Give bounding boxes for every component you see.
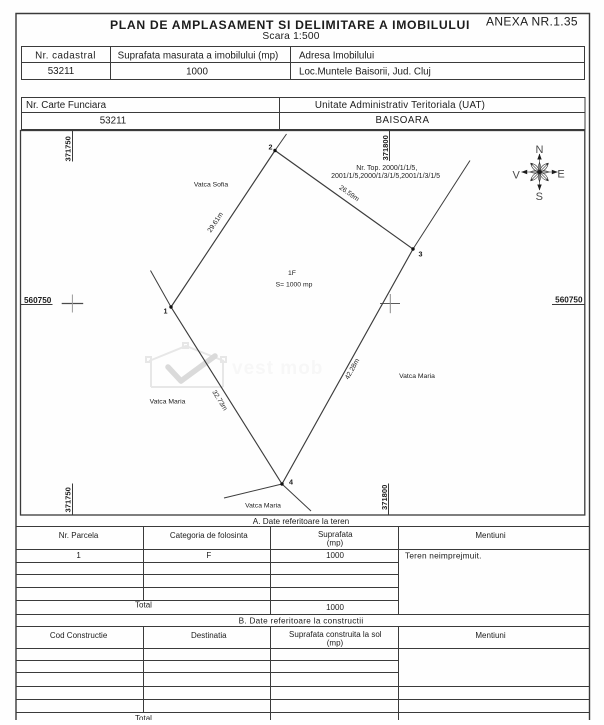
svg-text:ANEXA NR.1.35: ANEXA NR.1.35 [486, 15, 578, 29]
svg-text:Suprafata masurata a imobilulu: Suprafata masurata a imobilului (mp) [118, 51, 279, 62]
svg-text:371750: 371750 [64, 487, 73, 512]
svg-text:1: 1 [76, 551, 81, 560]
svg-text:53211: 53211 [48, 66, 75, 77]
svg-text:1000: 1000 [326, 603, 344, 612]
svg-text:Unitate Administrativ Teritori: Unitate Administrativ Teritoriala (UAT) [315, 100, 485, 111]
svg-text:A. Date referitoare la teren: A. Date referitoare la teren [253, 517, 350, 526]
svg-text:N: N [536, 144, 544, 156]
svg-text:Nr. Parcela: Nr. Parcela [59, 531, 99, 540]
svg-text:1F: 1F [288, 270, 296, 277]
svg-text:E: E [557, 169, 564, 181]
svg-text:3: 3 [419, 250, 423, 259]
svg-text:B. Date referitoare la constru: B. Date referitoare la constructii [239, 617, 364, 626]
svg-text:S= 1000 mp: S= 1000 mp [276, 282, 313, 289]
svg-text:Scara 1:500: Scara 1:500 [262, 31, 319, 42]
svg-text:Total: Total [135, 714, 152, 720]
svg-text:vest mob: vest mob [232, 358, 323, 379]
svg-text:560750: 560750 [555, 296, 583, 305]
svg-text:Total: Total [135, 601, 152, 610]
svg-text:Nr. Carte Funciara: Nr. Carte Funciara [26, 100, 107, 111]
svg-text:Categoria de folosinta: Categoria de folosinta [170, 531, 248, 540]
svg-text:Teren neimprejmuit.: Teren neimprejmuit. [405, 551, 482, 561]
svg-text:F: F [206, 551, 211, 560]
svg-text:Cod Constructie: Cod Constructie [50, 631, 108, 640]
svg-text:Nr. cadastral: Nr. cadastral [35, 51, 96, 62]
svg-text:560750: 560750 [24, 296, 52, 305]
svg-text:Vatca Maria: Vatca Maria [245, 503, 281, 510]
svg-text:371750: 371750 [64, 136, 73, 161]
svg-text:(mp): (mp) [327, 639, 344, 648]
svg-text:S: S [536, 191, 543, 203]
svg-text:Adresa Imobilului: Adresa Imobilului [299, 51, 374, 62]
svg-text:Mentiuni: Mentiuni [475, 531, 505, 540]
svg-text:PLAN DE AMPLASAMENT SI DELIMIT: PLAN DE AMPLASAMENT SI DELIMITARE A IMOB… [110, 18, 470, 32]
svg-text:371800: 371800 [380, 485, 389, 510]
svg-text:V: V [513, 170, 521, 182]
svg-text:Nr. Top. 2000/1/1/5,: Nr. Top. 2000/1/1/5, [356, 165, 417, 172]
svg-text:53211: 53211 [100, 116, 127, 127]
svg-text:BAISOARA: BAISOARA [375, 115, 429, 126]
svg-text:(mp): (mp) [327, 539, 344, 548]
svg-text:1000: 1000 [326, 551, 344, 560]
svg-text:1000: 1000 [186, 67, 208, 78]
svg-text:Vatca Sofia: Vatca Sofia [194, 182, 228, 189]
svg-text:1: 1 [164, 307, 168, 316]
svg-text:2001/1/5,2000/1/3/1/5,2001/1/3: 2001/1/5,2000/1/3/1/5,2001/1/3/1/5 [331, 173, 440, 180]
svg-text:Mentiuni: Mentiuni [475, 631, 505, 640]
svg-text:Vatca Maria: Vatca Maria [150, 399, 186, 406]
svg-text:4: 4 [289, 478, 293, 487]
svg-text:Destinatia: Destinatia [191, 631, 227, 640]
svg-text:2: 2 [269, 143, 273, 152]
svg-text:Vatca Maria: Vatca Maria [399, 373, 435, 380]
svg-text:371800: 371800 [381, 135, 390, 160]
svg-text:Loc.Muntele Baisorii, Jud. Clu: Loc.Muntele Baisorii, Jud. Cluj [299, 67, 431, 78]
